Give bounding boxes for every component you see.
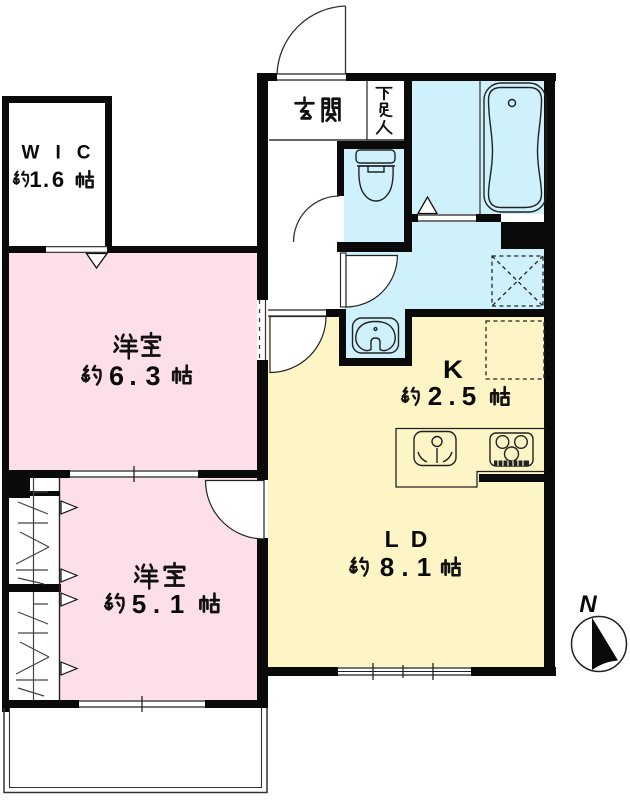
svg-text:WIC: WIC [22, 143, 107, 164]
svg-text:1: 1 [170, 589, 184, 619]
svg-text:1: 1 [417, 552, 431, 582]
svg-text:5: 5 [462, 381, 476, 411]
svg-text:LD: LD [385, 526, 440, 552]
svg-text:8: 8 [380, 552, 394, 582]
svg-text:K: K [443, 356, 463, 384]
svg-text:3: 3 [145, 361, 160, 391]
svg-text:6: 6 [109, 361, 124, 391]
svg-text:2: 2 [428, 381, 442, 411]
svg-text:.: . [129, 361, 137, 391]
svg-text:5: 5 [132, 589, 146, 619]
svg-text:.: . [448, 381, 455, 411]
svg-text:.: . [43, 167, 49, 192]
svg-text:6: 6 [52, 167, 64, 192]
svg-text:1: 1 [29, 167, 41, 192]
svg-text:N: N [579, 591, 597, 618]
svg-text:.: . [401, 552, 408, 582]
svg-text:.: . [153, 589, 160, 619]
